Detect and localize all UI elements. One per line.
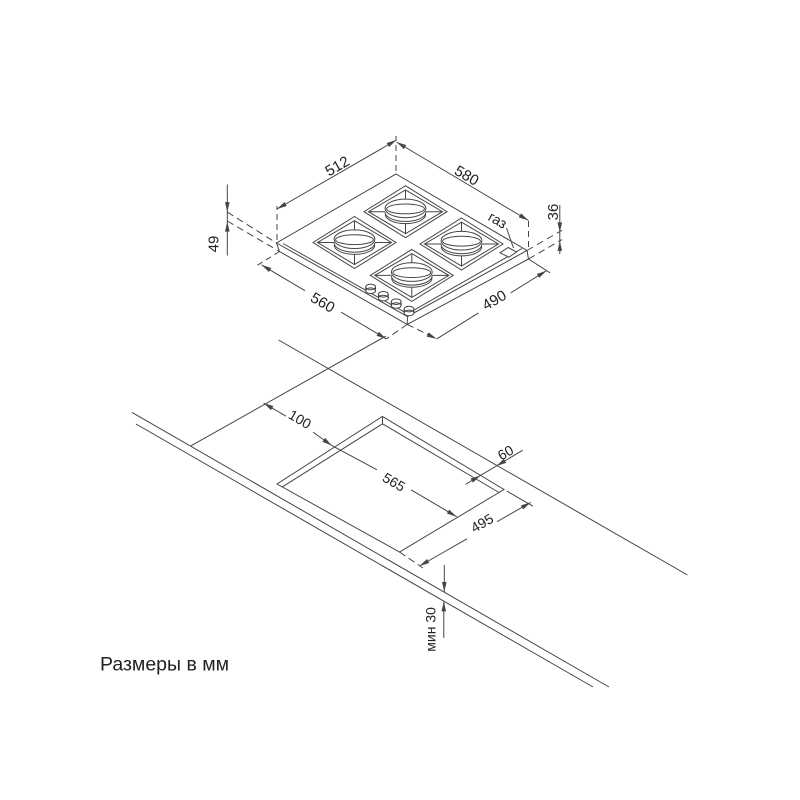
svg-text:49: 49	[206, 236, 223, 253]
svg-text:36: 36	[545, 204, 562, 221]
svg-text:Размеры в мм: Размеры в мм	[100, 654, 229, 676]
svg-text:мин 30: мин 30	[423, 607, 439, 652]
